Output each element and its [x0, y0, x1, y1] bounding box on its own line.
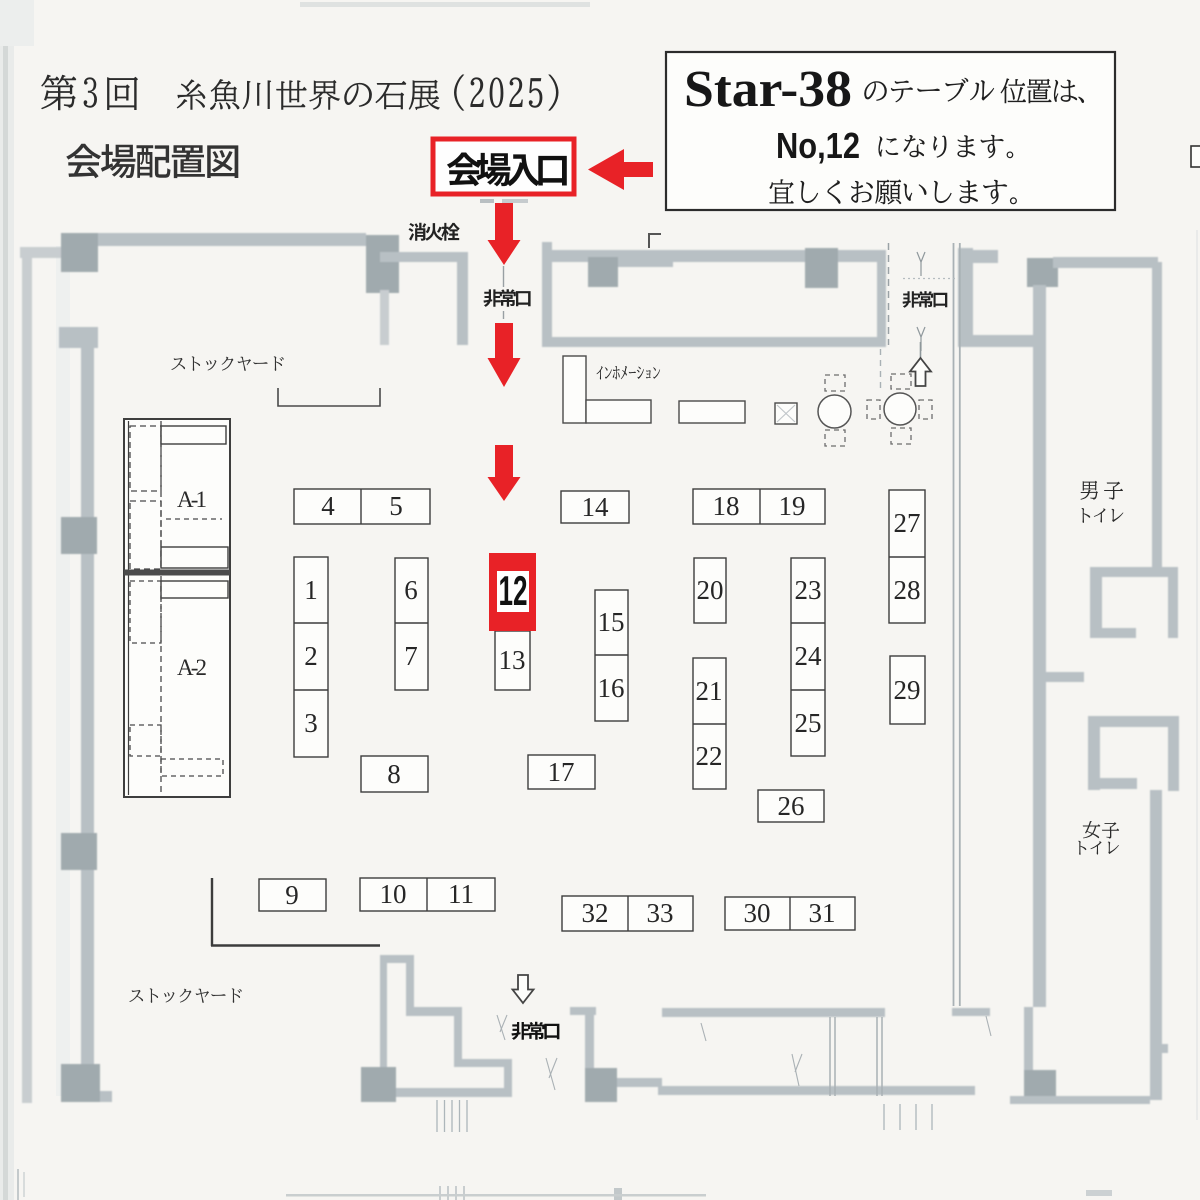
svg-text:16: 16	[598, 673, 625, 703]
svg-text:19: 19	[779, 491, 806, 521]
svg-text:33: 33	[647, 898, 674, 928]
svg-text:26: 26	[778, 791, 805, 821]
svg-text:32: 32	[582, 898, 609, 928]
svg-text:9: 9	[285, 880, 299, 910]
svg-text:14: 14	[582, 492, 610, 522]
svg-text:No,12: No,12	[776, 125, 860, 166]
svg-text:28: 28	[894, 575, 921, 605]
svg-text:A-1: A-1	[177, 487, 207, 512]
svg-text:23: 23	[795, 575, 822, 605]
svg-text:25: 25	[795, 708, 822, 738]
svg-text:21: 21	[696, 676, 723, 706]
svg-text:15: 15	[598, 607, 625, 637]
svg-text:5: 5	[389, 491, 403, 521]
svg-text:30: 30	[744, 898, 771, 928]
svg-text:10: 10	[380, 879, 407, 909]
svg-text:6: 6	[404, 575, 418, 605]
svg-text:4: 4	[321, 491, 335, 521]
svg-text:17: 17	[548, 757, 575, 787]
svg-text:1: 1	[304, 575, 318, 605]
svg-text:11: 11	[448, 879, 474, 909]
svg-text:7: 7	[404, 641, 418, 671]
svg-text:3: 3	[304, 708, 318, 738]
svg-text:31: 31	[809, 898, 836, 928]
svg-text:22: 22	[696, 741, 723, 771]
svg-text:18: 18	[713, 491, 740, 521]
svg-text:20: 20	[697, 575, 724, 605]
svg-text:2: 2	[304, 641, 318, 671]
svg-text:A-2: A-2	[177, 655, 207, 680]
svg-text:13: 13	[499, 645, 526, 675]
svg-text:12: 12	[499, 567, 528, 614]
svg-text:29: 29	[894, 675, 921, 705]
svg-text:Star-38: Star-38	[684, 61, 852, 118]
svg-text:27: 27	[894, 508, 921, 538]
svg-text:24: 24	[795, 641, 823, 671]
svg-text:8: 8	[387, 759, 401, 789]
